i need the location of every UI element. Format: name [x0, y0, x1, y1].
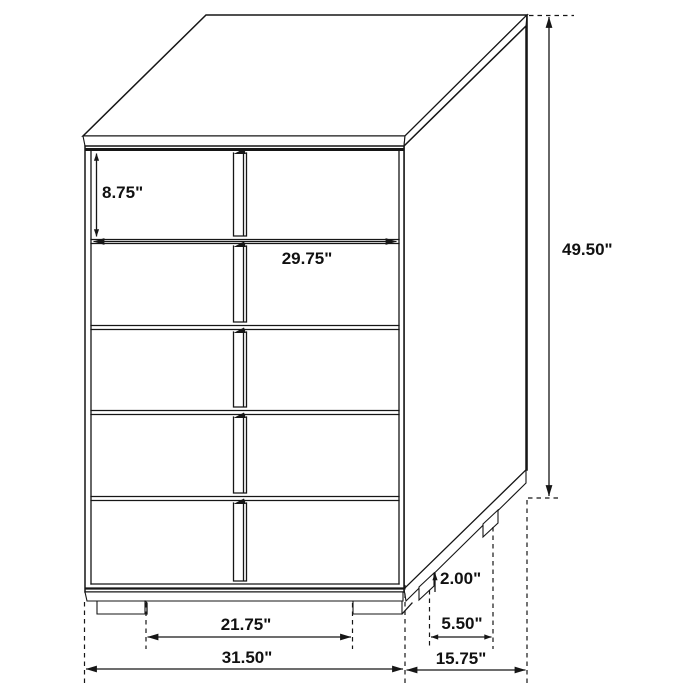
furniture-dimension-diagram: 8.75" 29.75" 49.50" 2.00" 5.50" 15.75" 2… [0, 0, 700, 700]
front-base-rail [85, 592, 403, 601]
handle-drawer-5 [234, 499, 247, 582]
front-left-leg [97, 601, 145, 614]
dim-label-side-leg-span: 5.50" [441, 614, 482, 633]
dim-label-overall-height: 49.50" [562, 240, 613, 259]
top-slab-front-edge [83, 136, 405, 146]
chest-body [83, 15, 527, 614]
dim-label-overall-width: 31.50" [222, 648, 273, 667]
chest-line-drawing: 8.75" 29.75" 49.50" 2.00" 5.50" 15.75" 2… [0, 0, 700, 700]
dim-label-front-leg-span: 21.75" [221, 615, 272, 634]
dim-label-overall-depth: 15.75" [436, 649, 487, 668]
dim-label-leg-height: 2.00" [440, 569, 481, 588]
front-right-leg [353, 601, 402, 614]
handle-drawer-3 [234, 328, 247, 408]
dim-label-drawer-face-height: 8.75" [102, 183, 143, 202]
drawer-handles [234, 149, 247, 581]
dim-label-drawer-width: 29.75" [282, 249, 333, 268]
handle-drawer-4 [234, 413, 247, 494]
handle-drawer-2 [234, 242, 247, 323]
handle-drawer-1 [234, 149, 247, 236]
